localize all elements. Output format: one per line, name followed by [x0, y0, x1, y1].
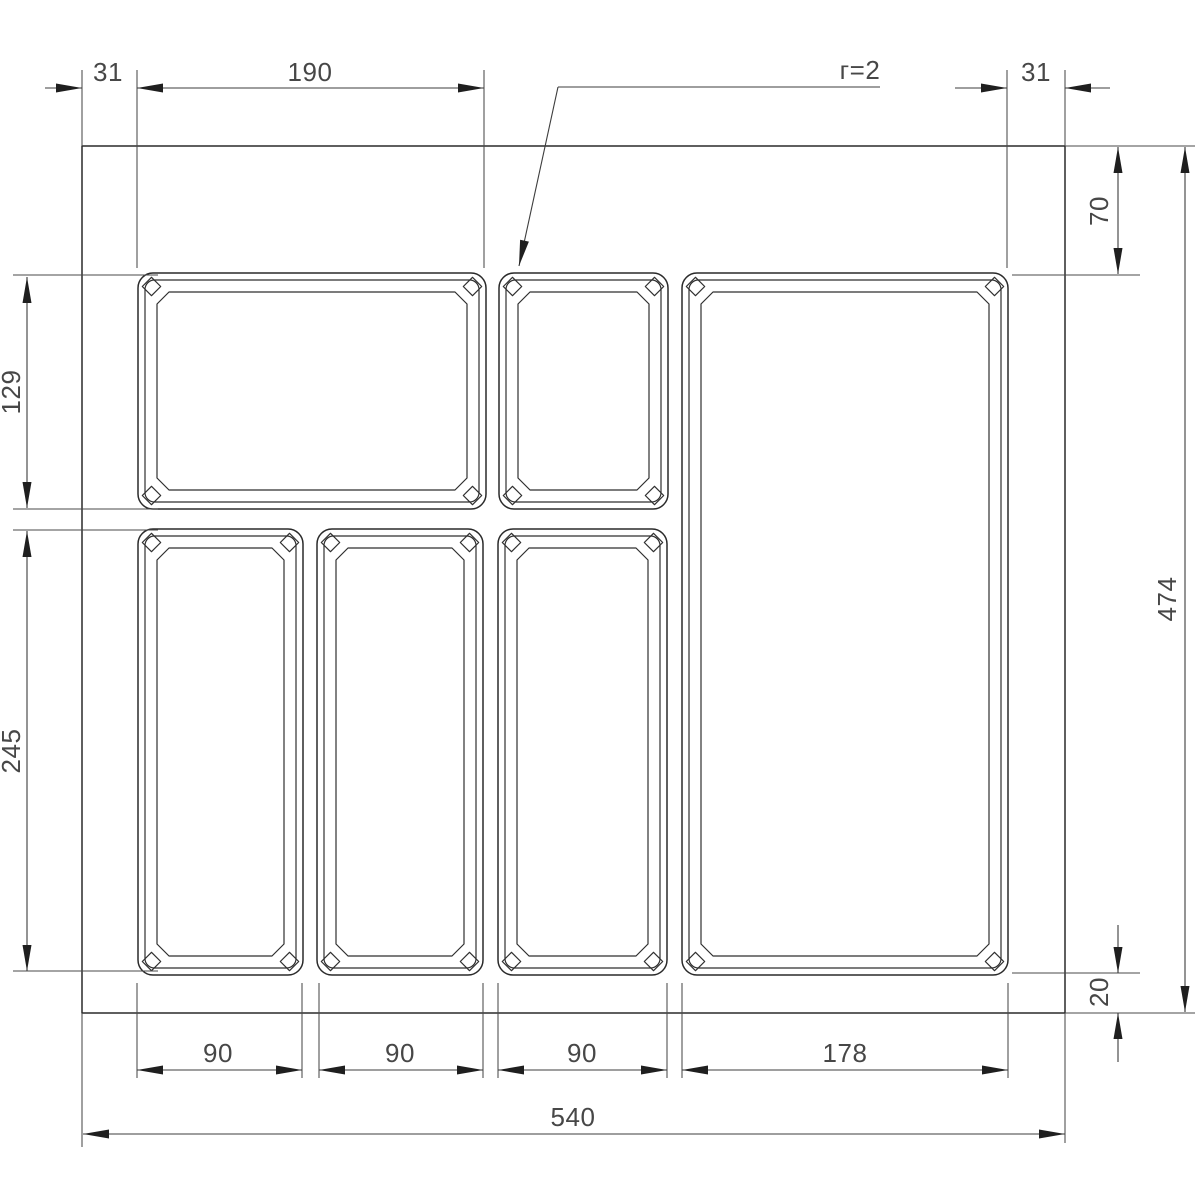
compartment	[317, 529, 483, 975]
dim-label-total-height: 474	[1152, 577, 1182, 622]
compartment-cavity-line	[157, 292, 467, 490]
dim-label-bottom-margin: 20	[1084, 977, 1114, 1007]
radius-leader	[519, 87, 880, 266]
dim-label-slot4-width: 178	[823, 1038, 868, 1068]
dim-label-slot1-width: 90	[203, 1038, 233, 1068]
tray-outer-rect	[82, 146, 1065, 1013]
compartment-rim-line	[324, 536, 476, 968]
compartment-cavity-line	[518, 292, 649, 490]
cutlery-tray-technical-drawing: 31 190 г=2 31 129 245 70 474 20 90 90 90…	[0, 0, 1200, 1200]
compartment	[499, 273, 668, 509]
extension-lines	[13, 70, 1195, 1147]
dim-label-bottom-row-height: 245	[0, 729, 26, 774]
compartment-outer-edge	[682, 273, 1008, 975]
compartment-rim-line	[506, 280, 661, 502]
leader-arrowhead	[519, 240, 529, 266]
dim-label-top-margin: 70	[1084, 196, 1114, 226]
compartment	[138, 273, 486, 509]
compartment-rim-line	[505, 536, 660, 968]
compartment-outer-edge	[138, 529, 303, 975]
compartment-cavity-line	[701, 292, 989, 956]
dimension-arrows	[23, 84, 1190, 1139]
compartment	[138, 529, 303, 975]
radius-note-label: г=2	[840, 55, 881, 85]
compartment-outer-edge	[499, 273, 668, 509]
dim-label-slot2-width: 90	[385, 1038, 415, 1068]
compartment-outer-edge	[138, 273, 486, 509]
drawing-canvas: 31 190 г=2 31 129 245 70 474 20 90 90 90…	[0, 0, 1200, 1200]
compartments	[138, 273, 1008, 975]
compartment-outer-edge	[317, 529, 483, 975]
dim-label-top-left-margin: 31	[93, 57, 123, 87]
dimension-lines	[27, 88, 1185, 1134]
compartment	[682, 273, 1008, 975]
dim-label-top-comp-width: 190	[288, 57, 333, 87]
compartment-rim-line	[145, 280, 479, 502]
compartment-rim-line	[689, 280, 1001, 968]
tray-outline	[82, 146, 1065, 1013]
dim-label-slot3-width: 90	[567, 1038, 597, 1068]
compartment-rim-line	[145, 536, 296, 968]
compartment-outer-edge	[498, 529, 667, 975]
dim-label-top-row-height: 129	[0, 370, 26, 415]
dim-label-top-right-margin: 31	[1021, 57, 1051, 87]
compartment-cavity-line	[336, 548, 464, 956]
dim-label-total-width: 540	[551, 1102, 596, 1132]
compartment-cavity-line	[157, 548, 284, 956]
compartment-cavity-line	[517, 548, 648, 956]
compartment	[498, 529, 667, 975]
